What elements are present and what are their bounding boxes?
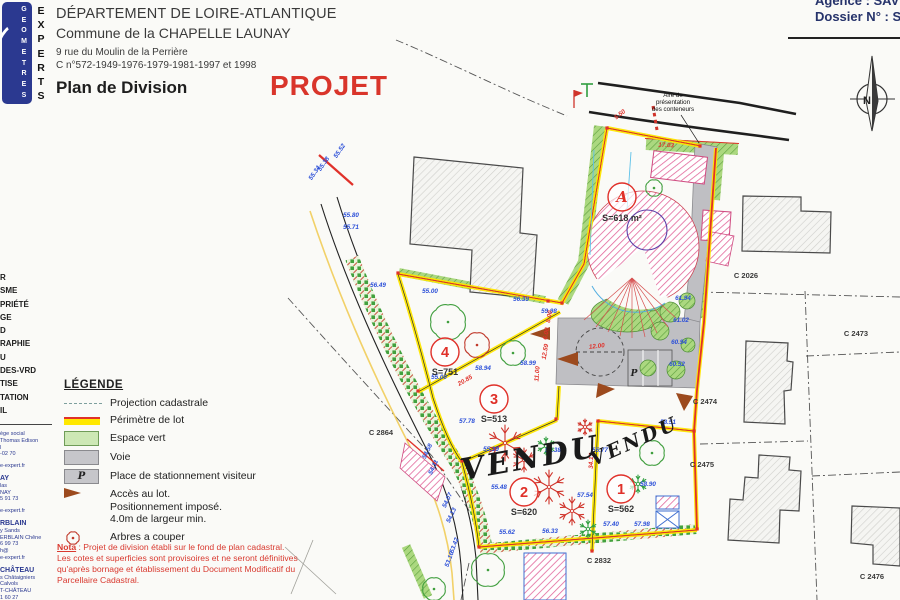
service-item: TISE	[0, 377, 36, 390]
legend: LÉGENDE Projection cadastralePérimètre d…	[64, 379, 316, 550]
service-item: DES-VRD	[0, 364, 36, 377]
elevation-value: 60.94	[671, 339, 687, 346]
corner-rule	[788, 37, 900, 39]
address-fragment: e-expert.fr	[0, 508, 41, 515]
access-arrow-icon	[676, 393, 693, 411]
parcel-number: C 2474	[693, 397, 718, 406]
address-fragment: AY	[0, 476, 41, 483]
address-fragment: s Châtaigniers	[0, 575, 41, 582]
address-line: 9 rue du Moulin de la Perrière	[56, 47, 337, 58]
legend-title: LÉGENDE	[64, 379, 316, 391]
elevation-value: 56.39	[513, 296, 529, 303]
legend-item: Accès au lot. Positionnement imposé. 4.0…	[64, 488, 316, 526]
address-fragment: 5 91 73	[0, 496, 41, 503]
legend-item: PPlace de stationnement visiteur	[64, 469, 316, 484]
service-item: SME	[0, 284, 36, 297]
elevation-value: 56.33	[542, 528, 558, 535]
dimension-value: 5.50	[613, 108, 627, 121]
service-item: RAPHIE	[0, 337, 36, 350]
legend-item-label: Voie	[110, 451, 130, 464]
address-fragment: e-expert.fr	[0, 555, 41, 562]
address-fragment: ERBLAIN Chêne	[0, 535, 41, 542]
lot-number: 1	[617, 482, 625, 498]
lot-number: 3	[490, 392, 498, 408]
address-fragment: NAY	[0, 490, 41, 497]
parcel-number: C 2026	[734, 271, 758, 280]
service-item: U	[0, 351, 36, 364]
legend-item: Projection cadastrale	[64, 397, 316, 410]
lot-area: S=513	[481, 414, 507, 424]
service-item: R	[0, 271, 36, 284]
north-letter: N	[863, 95, 871, 107]
legend-item-label: Espace vert	[110, 432, 165, 445]
dimension-value: 20.85	[456, 373, 474, 388]
elevation-value: 61.94	[675, 295, 691, 302]
logo-word-geometres: G E O M E T R E S	[19, 5, 29, 101]
address-fragment: RBLAIN	[0, 521, 41, 528]
services-list: RSMEPRIÉTÉGEDRAPHIEUDES-VRDTISETATIONIL	[0, 271, 36, 417]
address-fragment: e-expert.fr	[0, 463, 41, 470]
department-line: DÉPARTEMENT DE LOIRE-ATLANTIQUE	[56, 6, 337, 22]
projet-stamp: PROJET	[270, 70, 388, 102]
legend-item-label: Périmètre de lot	[110, 414, 184, 427]
nota-block: Nota : Projet de division établi sur le …	[57, 542, 367, 586]
dimension-value: 12.59	[541, 343, 551, 360]
lot-number: A	[614, 189, 627, 206]
elevation-value: 58.90	[640, 481, 656, 488]
address-fragment: T-CHÂTEAU	[0, 588, 41, 595]
parcel-number: C 2864	[369, 428, 394, 437]
address-fragment: 6 99 73	[0, 541, 41, 548]
dimension-value: 11.00	[533, 365, 541, 381]
parcel-number: C 2476	[860, 572, 884, 581]
commune-line: Commune de la CHAPELLE LAUNAY	[56, 25, 337, 41]
geometres-experts-logo: G E O M E T R E S E X P E R T S	[2, 2, 52, 112]
address-fragment: las	[0, 483, 41, 490]
address-fragment: CHÂTEAU	[0, 568, 41, 575]
legend-symbol-gray	[64, 450, 99, 465]
elevation-value: 57.40	[603, 521, 619, 528]
containers-note: présentation	[656, 99, 691, 106]
logo-word-experts: E X P E R T S	[35, 4, 47, 103]
service-item: IL	[0, 404, 36, 417]
hydrant-icon	[574, 90, 583, 108]
legend-item: Voie	[64, 450, 316, 465]
parking-letter: P	[630, 369, 638, 379]
service-item: PRIÉTÉ	[0, 298, 36, 311]
page-title: Plan de Division	[56, 78, 187, 98]
legend-symbol-arrow	[64, 488, 81, 498]
lot-area: S=620	[511, 507, 537, 517]
dimension-value: 8.00	[545, 310, 554, 324]
parcel-number: C 2832	[587, 556, 611, 565]
agence-label: Agence : SAV	[815, 0, 900, 9]
address-fragment: l	[0, 445, 41, 452]
legend-symbol-green	[64, 431, 99, 446]
north-arrow-icon: N	[850, 56, 895, 131]
containers-note: Aire de	[663, 92, 683, 99]
lot-area: S=751	[432, 367, 458, 377]
utility-t-icon	[581, 84, 593, 97]
address-fragment: 1 60 27	[0, 595, 41, 600]
address-fragment: Thomas Edison	[0, 438, 41, 445]
corner-block: Agence : SAV Dossier N° : S	[815, 0, 900, 25]
dossier-label: Dossier N° : S	[815, 9, 900, 25]
elevation-value: 56.49	[370, 282, 386, 289]
dimension-value: 17.03	[658, 142, 675, 150]
elevation-value: 55.71	[343, 224, 359, 231]
parcel-number: C 2473	[844, 329, 868, 338]
elevation-value: 55.80	[343, 212, 359, 219]
legend-item: Périmètre de lot	[64, 414, 316, 427]
sidebar-divider	[0, 424, 52, 425]
elevation-value: 57.78	[459, 418, 475, 425]
elevation-value: 53.16	[444, 550, 456, 568]
lot-area: S=562	[608, 504, 634, 514]
elevation-value: 55.00	[422, 288, 438, 295]
elevation-value: 57.54	[577, 492, 593, 499]
legend-item-label: Accès au lot. Positionnement imposé. 4.0…	[110, 488, 222, 526]
nota-text: : Projet de division établi sur le fond …	[57, 542, 298, 585]
header-block: DÉPARTEMENT DE LOIRE-ATLANTIQUE Commune …	[56, 6, 337, 71]
elevation-value: 58.94	[475, 365, 491, 372]
service-item: GE	[0, 311, 36, 324]
legend-symbol-park: P	[64, 469, 99, 484]
elevation-value: 57.98	[634, 521, 650, 528]
address-fragment: -02 70	[0, 451, 41, 458]
address-fragment: h@	[0, 548, 41, 555]
lot-area: S=618 m²	[602, 213, 642, 223]
service-item: TATION	[0, 391, 36, 404]
tree-icon	[534, 470, 563, 504]
elevation-value: 61.02	[673, 317, 689, 324]
containers-note: des conteneurs	[652, 106, 694, 113]
legend-item-label: Place de stationnement visiteur	[110, 470, 256, 483]
address-fragment: ège social	[0, 431, 41, 438]
legend-item-label: Projection cadastrale	[110, 397, 208, 410]
legend-symbol-yellow	[64, 417, 100, 425]
legend-item: Espace vert	[64, 431, 316, 446]
elevation-value: 55.48	[491, 484, 507, 491]
elevation-value: 55.52	[332, 142, 347, 159]
address-fragment: y Sands	[0, 528, 41, 535]
plan-sheet: N C 2026C 2473C 2474C 2475C 2476C 2864C …	[0, 0, 900, 600]
agency-addresses: ège socialThomas Edisonl-02 70e-expert.f…	[0, 431, 41, 600]
nota-label: Nota	[57, 542, 76, 552]
tree-icon	[560, 497, 584, 525]
service-item: D	[0, 324, 36, 337]
lot-number: 2	[520, 485, 528, 501]
lot-number: 4	[441, 345, 449, 361]
elevation-value: 55.62	[499, 529, 515, 536]
legend-symbol-dash	[64, 403, 102, 404]
elevation-value: 60.52	[669, 361, 685, 368]
parcel-number: C 2475	[690, 460, 714, 469]
elevation-value: 54.07	[441, 491, 454, 509]
